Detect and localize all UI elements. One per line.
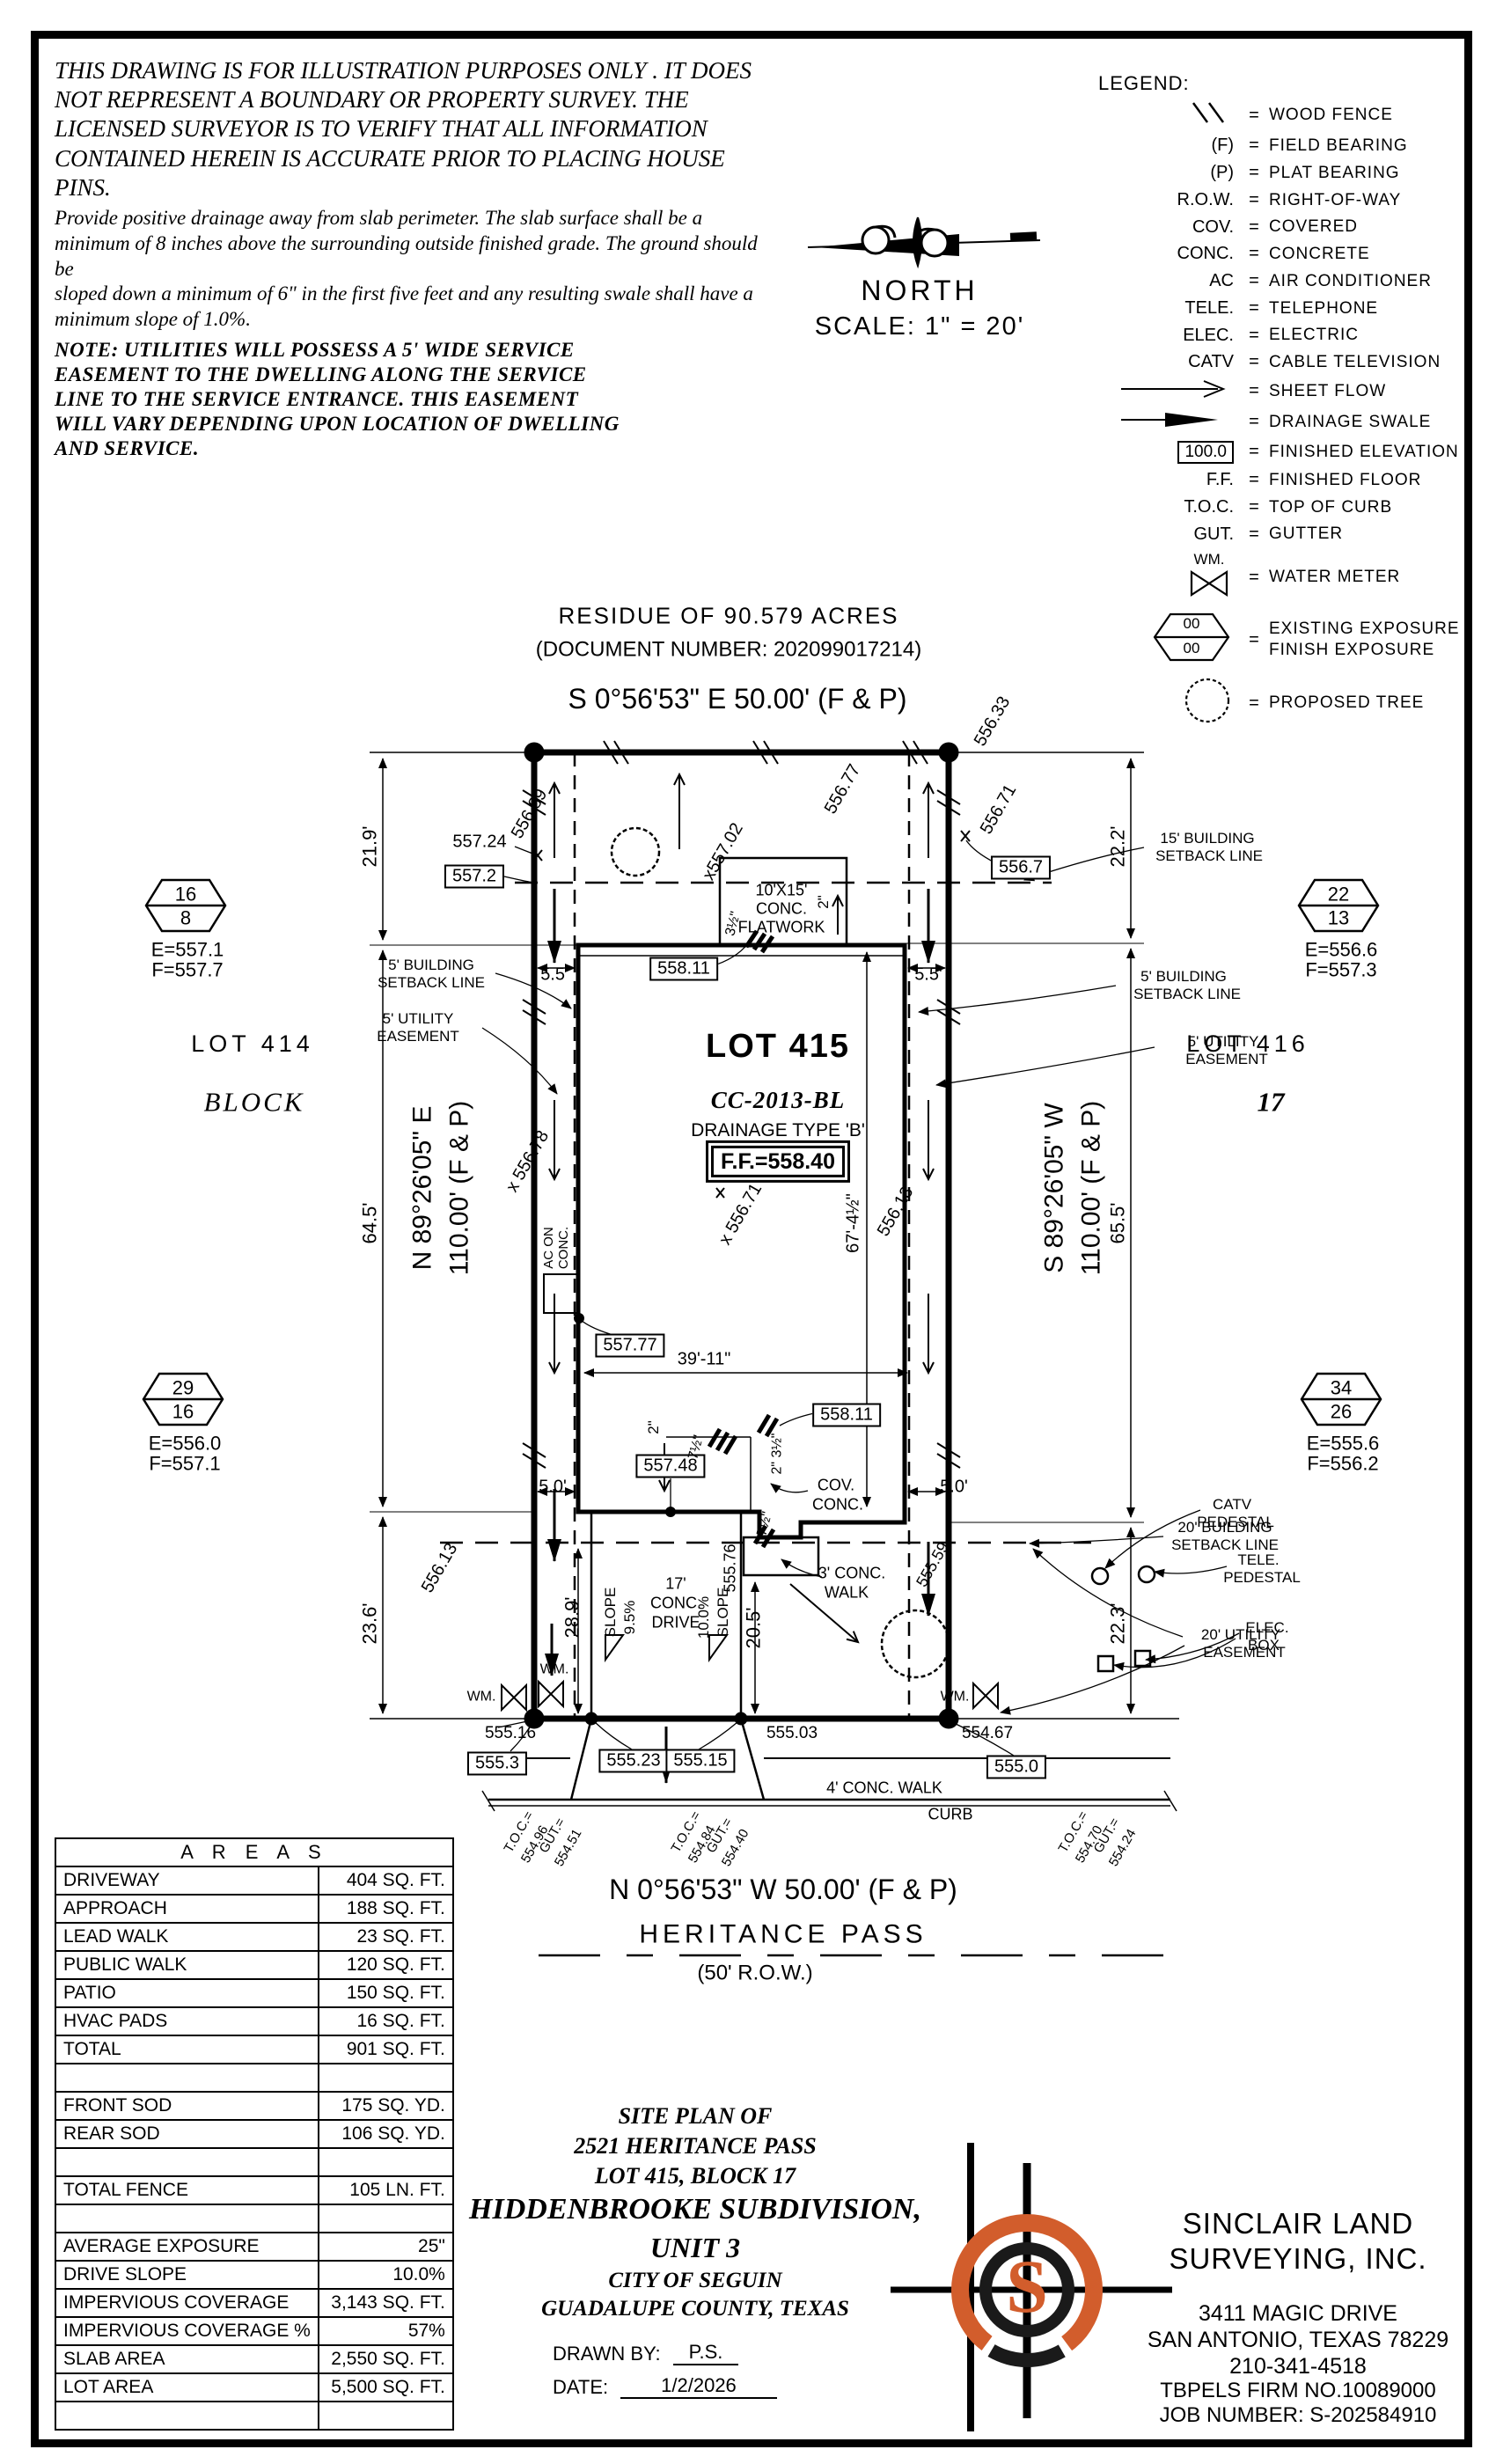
company-address-2: SAN ANTONIO, TEXAS 78229	[1135, 2328, 1461, 2353]
areas-row-label: PUBLIC WALK	[55, 1951, 319, 1979]
proposed-tree-icon	[882, 1610, 949, 1677]
areas-row-value: 188 SQ. FT.	[319, 1895, 453, 1923]
areas-row-label: IMPERVIOUS COVERAGE %	[55, 2317, 319, 2345]
block-17: 17	[1258, 1089, 1285, 1118]
areas-row-value: 23 SQ. FT.	[319, 1923, 453, 1951]
slope-triangle-2	[709, 1635, 727, 1660]
company-job-number: JOB NUMBER: S-202584910	[1135, 2403, 1461, 2428]
areas-row-label: LOT AREA	[55, 2373, 319, 2402]
areas-row-label: DRIVE SLOPE	[55, 2261, 319, 2289]
easement5L-1: 5' UTILITY	[383, 1011, 454, 1027]
dim-2in-top: 2"	[816, 895, 832, 909]
setback15-2: SETBACK LINE	[1155, 848, 1263, 864]
wm-right: WM.	[941, 1690, 970, 1705]
elec-1: ELEC.	[1245, 1620, 1288, 1636]
bearing-north: S 0°56'53" E 50.00' (F & P)	[568, 685, 906, 715]
dim-2-3half: 2" 3½"	[771, 1434, 786, 1475]
walk3-1: 3' CONC.	[818, 1566, 885, 1582]
slope1-2: 9.5%	[622, 1601, 638, 1635]
easement5R-1: 5' UTILITY	[1188, 1034, 1259, 1050]
tele-1: TELE.	[1237, 1552, 1279, 1568]
ff-elevation: F.F.=558.40	[711, 1146, 845, 1177]
wm-left-1: WM.	[467, 1690, 496, 1705]
hex-nw-e: E=557.1	[151, 939, 224, 959]
dim-28-9: 28.9'	[561, 1596, 582, 1638]
areas-row-label	[55, 2148, 319, 2176]
hex-se-top: 34	[1331, 1377, 1352, 1397]
areas-row-value: 120 SQ. FT.	[319, 1951, 453, 1979]
titleblock-line7: GUADALUPE COUNTY, TEXAS	[387, 2297, 1003, 2321]
hex-se-e: E=555.6	[1307, 1433, 1380, 1453]
spot-557-2: 557.2	[444, 865, 504, 889]
areas-title: A R E A S	[55, 1838, 453, 1866]
cov-conc-1: COV.	[818, 1478, 854, 1494]
areas-row-value: 2,550 SQ. FT.	[319, 2345, 453, 2373]
areas-row-value: 901 SQ. FT.	[319, 2035, 453, 2064]
spot-555-76: 555.76	[722, 1544, 739, 1592]
areas-row-value	[319, 2402, 453, 2430]
tele-2: PEDESTAL	[1223, 1570, 1301, 1586]
areas-row-label: REAR SOD	[55, 2120, 319, 2148]
areas-row: PUBLIC WALK120 SQ. FT.	[55, 1951, 453, 1979]
slope-triangle-1	[605, 1635, 623, 1660]
titleblock-line6: CITY OF SEGUIN	[387, 2269, 1003, 2293]
date-value: 1/2/2026	[620, 2374, 777, 2399]
dim-5-0-right: 5.0'	[940, 1478, 968, 1497]
dim-23-6: 23.6'	[359, 1602, 379, 1644]
elec-2: BOX	[1248, 1638, 1280, 1654]
drainage-type: DRAINAGE TYPE 'B'	[691, 1121, 865, 1140]
dim-5-5-right: 5.5'	[914, 966, 942, 985]
hex-se-f: F=556.2	[1307, 1453, 1378, 1473]
cov-conc-2: CONC.	[812, 1497, 863, 1514]
areas-row-label: APPROACH	[55, 1895, 319, 1923]
bearing-west-2: 110.00' (F & P)	[445, 1101, 473, 1276]
areas-row-label: PATIO	[55, 1979, 319, 2007]
dim-67-4: 67'-4½"	[845, 1193, 863, 1253]
company-name-2: SURVEYING, INC.	[1135, 2242, 1461, 2276]
hex-ne-top: 22	[1328, 884, 1349, 904]
areas-row-value: 5,500 SQ. FT.	[319, 2373, 453, 2402]
curb: CURB	[928, 1807, 972, 1823]
dim-5-0-left: 5.0'	[539, 1478, 567, 1497]
areas-row: DRIVEWAY404 SQ. FT.	[55, 1866, 453, 1895]
areas-row-label: AVERAGE EXPOSURE	[55, 2233, 319, 2261]
walk4: 4' CONC. WALK	[826, 1780, 942, 1797]
areas-row-value: 150 SQ. FT.	[319, 1979, 453, 2007]
setback15-1: 15' BUILDING	[1160, 831, 1254, 847]
areas-row-label: DRIVEWAY	[55, 1866, 319, 1895]
north-arrow-icon	[808, 217, 1040, 266]
company-firm-number: TBPELS FIRM NO.10089000	[1135, 2379, 1461, 2403]
company-logo-letter: S	[1006, 2247, 1048, 2326]
areas-row-label: TOTAL FENCE	[55, 2176, 319, 2204]
areas-row: APPROACH188 SQ. FT.	[55, 1895, 453, 1923]
bearing-west-1: N 89°26'05" E	[408, 1106, 436, 1271]
bearing-east-2: 110.00' (F & P)	[1077, 1101, 1105, 1276]
company-phone: 210-341-4518	[1135, 2354, 1461, 2380]
dim-20-5: 20.5'	[743, 1607, 763, 1648]
areas-row-value	[319, 2064, 453, 2092]
spot-557-24: 557.24	[452, 833, 506, 852]
easement5R-2: EASEMENT	[1185, 1052, 1268, 1067]
spot-555-3: 555.3	[467, 1752, 527, 1776]
site-plan-page: THIS DRAWING IS FOR ILLUSTRATION PURPOSE…	[0, 0, 1496, 2464]
setback5R-1: 5' BUILDING	[1140, 969, 1227, 985]
water-meter-icon	[502, 1682, 998, 1710]
spot-558-11-bot: 558.11	[812, 1404, 881, 1427]
bearing-east-1: S 89°26'05" W	[1040, 1103, 1068, 1272]
hex-ne-f: F=557.3	[1305, 959, 1376, 979]
areas-row-label: LEAD WALK	[55, 1923, 319, 1951]
areas-row-label	[55, 2402, 319, 2430]
titleblock-line5: UNIT 3	[387, 2232, 1003, 2264]
bearing-south: N 0°56'53" W 50.00' (F & P)	[609, 1875, 957, 1905]
easement5L-2: EASEMENT	[377, 1029, 459, 1045]
dim-2in-mid: 2"	[646, 1420, 662, 1434]
dim-5-5-left: 5.5'	[540, 966, 568, 985]
titleblock-line1: SITE PLAN OF	[387, 2103, 1003, 2130]
areas-row-label: TOTAL	[55, 2035, 319, 2064]
hex-ne-bottom: 13	[1328, 907, 1349, 928]
dim-39-11: 39'-11"	[678, 1351, 731, 1369]
ac-on-2: CONC.	[557, 1227, 571, 1269]
spot-556-7: 556.7	[991, 856, 1051, 880]
areas-row-label: SLAB AREA	[55, 2345, 319, 2373]
areas-row: LEAD WALK23 SQ. FT.	[55, 1923, 453, 1951]
dim-21-9: 21.9'	[359, 825, 379, 867]
hex-se-bottom: 26	[1331, 1401, 1352, 1421]
dim-22-2: 22.2'	[1107, 825, 1127, 867]
ac-pad	[544, 1274, 578, 1313]
company-name-1: SINCLAIR LAND	[1135, 2207, 1461, 2240]
catv-2: PEDESTAL	[1197, 1514, 1274, 1530]
spot-557-77: 557.77	[595, 1334, 664, 1358]
spot-554-67: 554.67	[962, 1725, 1013, 1742]
setback5R-2: SETBACK LINE	[1133, 986, 1241, 1002]
areas-row: TOTAL901 SQ. FT.	[55, 2035, 453, 2064]
drive-2: CONC.	[650, 1595, 701, 1612]
areas-row: SLAB AREA2,550 SQ. FT.	[55, 2345, 453, 2373]
titleblock-line4: HIDDENBROOKE SUBDIVISION,	[387, 2193, 1003, 2226]
drawn-by-label: DRAWN BY:	[553, 2343, 661, 2365]
areas-row	[55, 2064, 453, 2092]
drawn-by-value: P.S.	[673, 2341, 739, 2365]
hex-ne-e: E=556.6	[1305, 939, 1378, 959]
slope1-1: SLOPE	[603, 1588, 619, 1638]
slope2-1: 10.0%	[696, 1596, 712, 1639]
areas-row-value: 404 SQ. FT.	[319, 1866, 453, 1895]
setback5L-1: 5' BUILDING	[388, 957, 474, 973]
areas-row-label	[55, 2204, 319, 2233]
setback5L-2: SETBACK LINE	[378, 975, 485, 991]
spot-558-11-top: 558.11	[649, 957, 718, 981]
hex-sw-bottom: 16	[172, 1401, 194, 1421]
areas-row-label: FRONT SOD	[55, 2092, 319, 2120]
flatwork-1: 10'X15'	[756, 883, 808, 899]
spot-555-0: 555.0	[986, 1756, 1046, 1779]
dim-22-3: 22.3'	[1107, 1602, 1127, 1644]
areas-row: HVAC PADS16 SQ. FT.	[55, 2007, 453, 2035]
flatwork-2: CONC.	[756, 901, 807, 918]
tele-pedestal-icon	[1139, 1566, 1155, 1582]
hex-sw-e: E=556.0	[149, 1433, 222, 1453]
hex-sw-f: F=557.1	[149, 1453, 220, 1473]
spot-555-15: 555.15	[665, 1749, 735, 1773]
spot-555-16: 555.16	[485, 1725, 536, 1742]
spot-555-23: 555.23	[598, 1749, 668, 1773]
date-label: DATE:	[553, 2376, 608, 2399]
hex-nw-bottom: 8	[180, 907, 191, 928]
catv-1: CATV	[1213, 1497, 1251, 1513]
areas-row-value: 16 SQ. FT.	[319, 2007, 453, 2035]
wm-left-2: WM.	[540, 1663, 569, 1678]
areas-row-label: HVAC PADS	[55, 2007, 319, 2035]
block-label: BLOCK	[204, 1089, 305, 1118]
street-row: (50' R.O.W.)	[697, 1962, 812, 1984]
walk3-2: WALK	[825, 1585, 869, 1602]
street-name: HERITANCE PASS	[639, 1920, 927, 1948]
areas-row: LOT AREA5,500 SQ. FT.	[55, 2373, 453, 2402]
areas-row	[55, 2402, 453, 2430]
spot-555-03: 555.03	[766, 1725, 818, 1742]
hex-nw-top: 16	[175, 884, 196, 904]
drive-3: DRIVE	[651, 1615, 700, 1632]
cc-2013: CC-2013-BL	[711, 1088, 846, 1112]
dim-64-5: 64.5'	[359, 1202, 379, 1243]
titleblock-line2: 2521 HERITANCE PASS	[387, 2133, 1003, 2160]
lot-414: LOT 414	[191, 1031, 314, 1056]
titleblock-line3: LOT 415, BLOCK 17	[387, 2163, 1003, 2189]
hex-nw-f: F=557.7	[151, 959, 223, 979]
areas-row-label	[55, 2064, 319, 2092]
residue-acres: RESIDUE OF 90.579 ACRES	[558, 604, 898, 627]
residue-doc: (DOCUMENT NUMBER: 202099017214)	[536, 638, 921, 660]
dim-65-5: 65.5'	[1107, 1202, 1127, 1243]
areas-row-label: IMPERVIOUS COVERAGE	[55, 2289, 319, 2317]
flatwork-3: FLATWORK	[738, 920, 825, 936]
catv-pedestal-icon	[1092, 1568, 1108, 1584]
lot-415: LOT 415	[706, 1030, 850, 1065]
proposed-tree-icon	[612, 828, 659, 876]
drive-1: 17'	[665, 1576, 686, 1593]
hex-sw-top: 29	[172, 1377, 194, 1397]
company-address-1: 3411 MAGIC DRIVE	[1135, 2301, 1461, 2327]
ac-on-1: AC ON	[542, 1227, 556, 1269]
slope2-2: SLOPE	[715, 1588, 731, 1638]
areas-row: PATIO150 SQ. FT.	[55, 1979, 453, 2007]
elec-box-icon	[1098, 1656, 1113, 1671]
